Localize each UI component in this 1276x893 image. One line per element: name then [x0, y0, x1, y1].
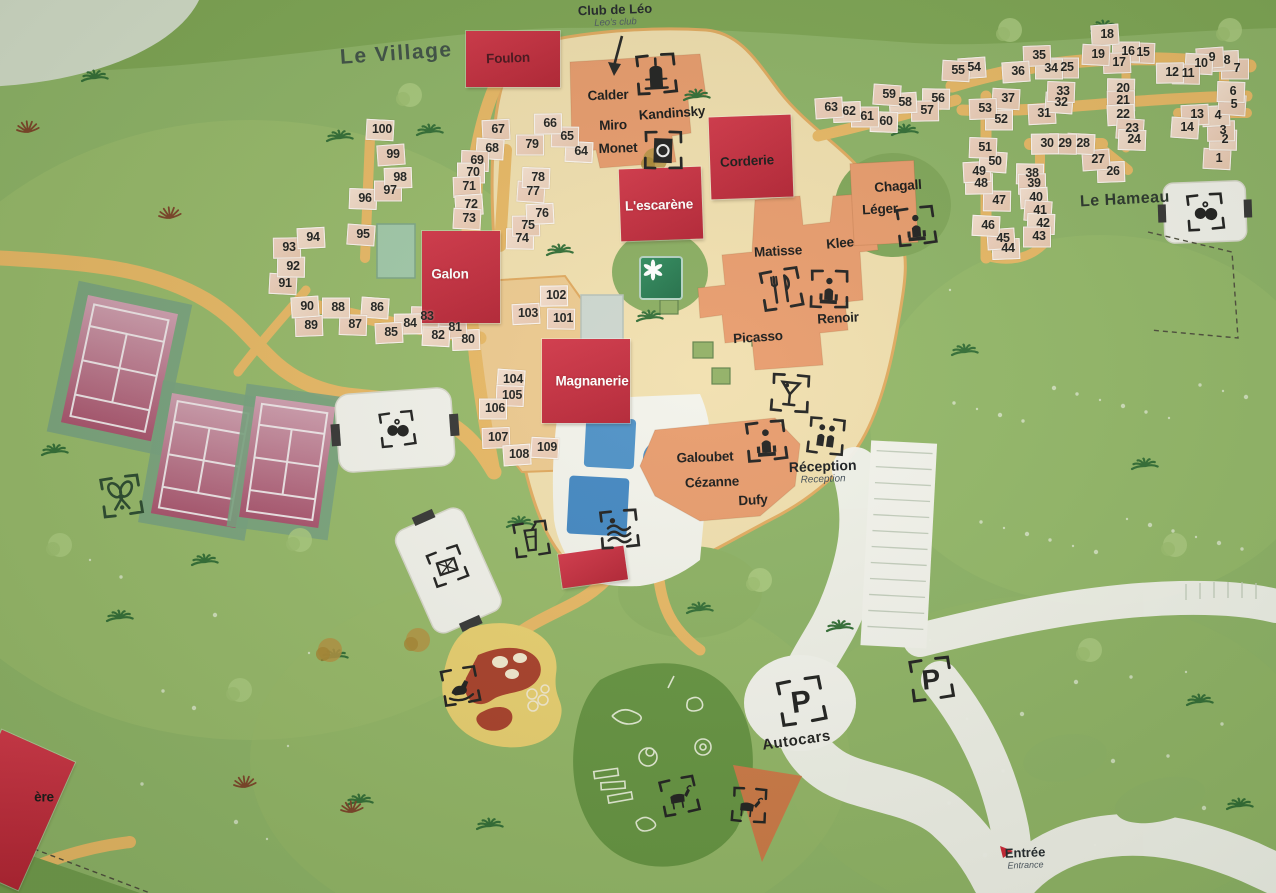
house-number: 64 — [574, 144, 587, 158]
building-label-foulon: Foulon — [486, 50, 530, 67]
house-number: 10 — [1194, 56, 1207, 70]
house-number: 27 — [1091, 152, 1104, 166]
house-number: 33 — [1056, 84, 1069, 98]
house-number: 107 — [488, 430, 508, 444]
garden-pool — [377, 224, 415, 278]
statue-icon — [892, 202, 940, 250]
house-number: 104 — [503, 372, 523, 386]
house-number: 9 — [1209, 50, 1216, 64]
house-number: 40 — [1029, 190, 1042, 204]
resort-map: Le Village Le Hameau Club de Léo Leo's c… — [0, 0, 1276, 893]
house-number: 15 — [1136, 45, 1149, 59]
building-label--re: ère — [34, 790, 54, 805]
entree-subtitle: Entrance — [1005, 859, 1046, 870]
house-number: 31 — [1037, 106, 1050, 120]
house-number: 82 — [431, 328, 444, 342]
svg-text:P: P — [789, 685, 814, 720]
house-number: 105 — [502, 388, 522, 402]
house-number: 79 — [525, 137, 538, 151]
house-number: 22 — [1116, 107, 1129, 121]
house-number: 100 — [372, 122, 392, 136]
building-label-c-zanne: Cézanne — [685, 474, 740, 491]
mini-club-icon — [639, 256, 683, 300]
region-label-entree: Entrée Entrance — [1005, 844, 1046, 870]
house-number: 11 — [1182, 66, 1195, 80]
house-number: 67 — [491, 122, 504, 136]
house-number: 65 — [560, 129, 573, 143]
statue-icon — [741, 416, 790, 465]
house-number: 34 — [1044, 61, 1057, 75]
house-number: 54 — [967, 60, 980, 74]
house-number: 75 — [521, 218, 534, 232]
house-number: 85 — [384, 325, 397, 339]
entree-text: Entrée — [1005, 844, 1046, 860]
house-number: 17 — [1112, 55, 1125, 69]
house-number: 48 — [974, 176, 987, 190]
house-number: 7 — [1234, 61, 1241, 75]
parking-strip — [860, 440, 937, 648]
house-number: 78 — [531, 170, 544, 184]
house-number: 62 — [842, 104, 855, 118]
house-number: 80 — [461, 332, 474, 346]
building-label-matisse: Matisse — [754, 242, 803, 259]
house-number: 96 — [358, 191, 371, 205]
house-number: 36 — [1011, 64, 1024, 78]
house-number: 4 — [1215, 108, 1222, 122]
petanque-icon — [1183, 190, 1227, 234]
house-number: 77 — [526, 184, 539, 198]
petanque-icon — [375, 407, 418, 450]
house-number: 58 — [898, 95, 911, 109]
building-label-galoubet: Galoubet — [676, 449, 733, 466]
house-number: 45 — [996, 231, 1009, 245]
house-number: 97 — [383, 183, 396, 197]
house-number: 5 — [1231, 97, 1238, 111]
building-label-klee: Klee — [826, 234, 855, 251]
house-number: 63 — [824, 100, 837, 114]
animal-park — [573, 663, 753, 866]
house-number: 26 — [1106, 164, 1119, 178]
building-label-galon: Galon — [431, 267, 468, 282]
house-number: 106 — [485, 401, 505, 415]
le-hameau-text: Le Hameau — [1080, 189, 1171, 211]
svg-text:P: P — [920, 663, 942, 696]
house-number: 42 — [1036, 216, 1049, 230]
house-number: 91 — [278, 276, 291, 290]
house-number: 6 — [1230, 84, 1237, 98]
house-number: 18 — [1100, 27, 1113, 41]
building-label-magnanerie: Magnanerie — [555, 374, 628, 389]
house-number: 71 — [462, 179, 475, 193]
house-number: 60 — [879, 114, 892, 128]
house-number: 74 — [515, 231, 528, 245]
house-number: 59 — [882, 87, 895, 101]
house-number: 88 — [331, 300, 344, 314]
house-number: 101 — [553, 311, 573, 325]
house-number: 86 — [370, 300, 383, 314]
house-number: 46 — [981, 218, 994, 232]
house-number: 72 — [464, 197, 477, 211]
house-number: 92 — [286, 259, 299, 273]
club-de-leo-text: Club de Léo — [578, 1, 653, 19]
house-number: 41 — [1033, 203, 1046, 217]
house-number: 53 — [978, 101, 991, 115]
building-label-renoir: Renoir — [817, 309, 859, 326]
house-number: 83 — [420, 309, 433, 323]
house-number: 8 — [1224, 53, 1231, 67]
clubhouse-tower-icon — [632, 50, 680, 98]
house-number: 84 — [403, 316, 416, 330]
region-label-club-de-leo: Club de Léo Leo's club — [578, 1, 653, 30]
statue-icon — [806, 266, 852, 312]
playground-icon — [436, 662, 483, 709]
house-number: 93 — [282, 240, 295, 254]
region-label-reception: Réception Reception — [789, 457, 858, 486]
pool — [584, 417, 637, 470]
house-number: 47 — [992, 193, 1005, 207]
house-number: 52 — [994, 112, 1007, 126]
house-number: 49 — [972, 164, 985, 178]
goat-icon — [655, 772, 704, 821]
house-number: 43 — [1032, 229, 1045, 243]
house-number: 14 — [1180, 120, 1193, 134]
house-number: 89 — [304, 318, 317, 332]
restaurant-icon — [755, 263, 807, 315]
house-number: 94 — [306, 230, 319, 244]
building-label-l-escar-ne: L'escarène — [625, 196, 693, 213]
parking-icon: P — [905, 653, 958, 706]
house-number: 37 — [1001, 91, 1014, 105]
house-number: 76 — [535, 206, 548, 220]
building-label-miro: Miro — [599, 117, 627, 133]
house-number: 30 — [1040, 136, 1053, 150]
laundry-icon — [640, 127, 686, 173]
house-number: 24 — [1127, 132, 1140, 146]
house-number: 81 — [448, 320, 461, 334]
house-number: 70 — [466, 165, 479, 179]
house-number: 87 — [348, 317, 361, 331]
tennis-icon — [96, 471, 147, 522]
house-number: 39 — [1027, 176, 1040, 190]
house-number: 51 — [978, 140, 991, 154]
building-label-dufy: Dufy — [738, 492, 768, 509]
building-label-corderie: Corderie — [720, 152, 775, 170]
snack-drink-icon — [509, 517, 553, 561]
house-number: 73 — [462, 211, 475, 225]
house-number: 12 — [1165, 65, 1178, 79]
house-number: 102 — [546, 288, 566, 302]
house-number: 61 — [860, 109, 873, 123]
bar-icon — [766, 369, 814, 417]
house-number: 13 — [1190, 107, 1203, 121]
swimming-pool-icon — [596, 506, 642, 552]
house-number: 68 — [485, 141, 498, 155]
house-number: 50 — [988, 154, 1001, 168]
house-number: 95 — [356, 227, 369, 241]
house-number: 21 — [1116, 93, 1129, 107]
house-number: 90 — [300, 299, 313, 313]
house-number: 35 — [1032, 48, 1045, 62]
building-label-monet: Monet — [598, 140, 637, 156]
reception-people-icon — [802, 412, 849, 459]
house-number: 1 — [1216, 151, 1223, 165]
house-number: 29 — [1058, 136, 1071, 150]
house-number: 66 — [543, 116, 556, 130]
house-number: 3 — [1220, 123, 1227, 137]
house-number: 108 — [509, 447, 529, 461]
house-number: 25 — [1060, 60, 1073, 74]
house-number: 98 — [393, 170, 406, 184]
house-number: 103 — [518, 306, 538, 320]
house-number: 55 — [951, 63, 964, 77]
parking-icon: P — [772, 672, 831, 731]
house-number: 57 — [920, 103, 933, 117]
house-number: 99 — [386, 147, 399, 161]
pony-icon — [727, 783, 771, 827]
building-label-calder: Calder — [587, 87, 628, 103]
house-number: 28 — [1076, 136, 1089, 150]
house-number: 19 — [1091, 47, 1104, 61]
reception-text: Réception — [789, 457, 857, 475]
house-number: 109 — [537, 440, 557, 454]
